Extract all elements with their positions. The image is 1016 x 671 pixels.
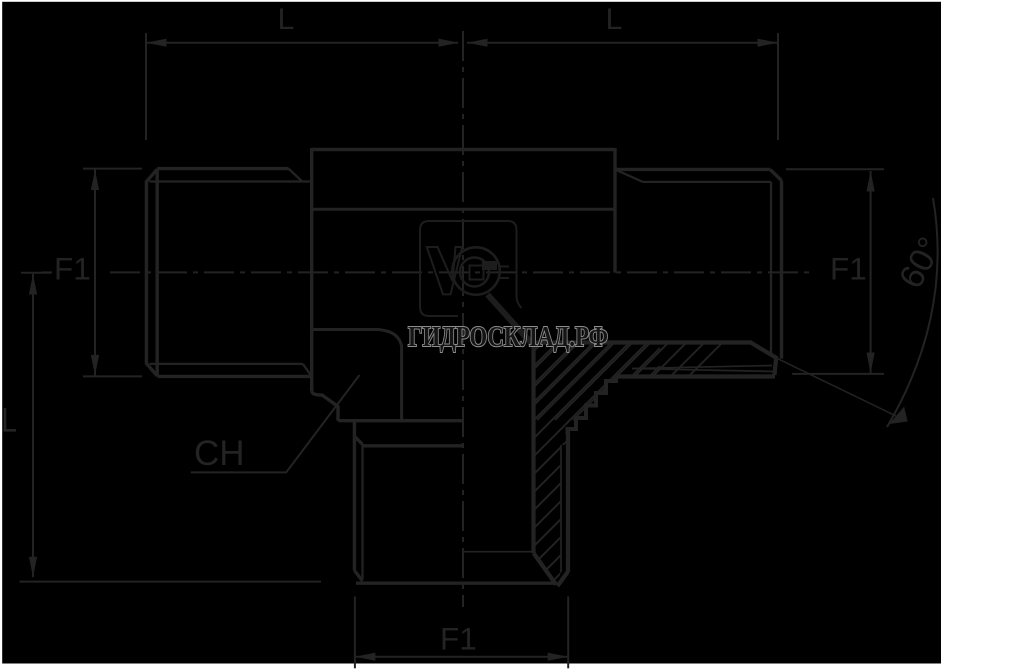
svg-text:L: L [606,3,623,36]
svg-text:F1: F1 [54,251,91,287]
svg-text:CH: CH [194,434,245,473]
svg-text:L: L [278,3,295,36]
svg-text:F1: F1 [440,621,477,657]
svg-text:F1: F1 [830,251,867,287]
svg-text:ГИДРОСКЛАД.РФ: ГИДРОСКЛАД.РФ [408,322,608,353]
